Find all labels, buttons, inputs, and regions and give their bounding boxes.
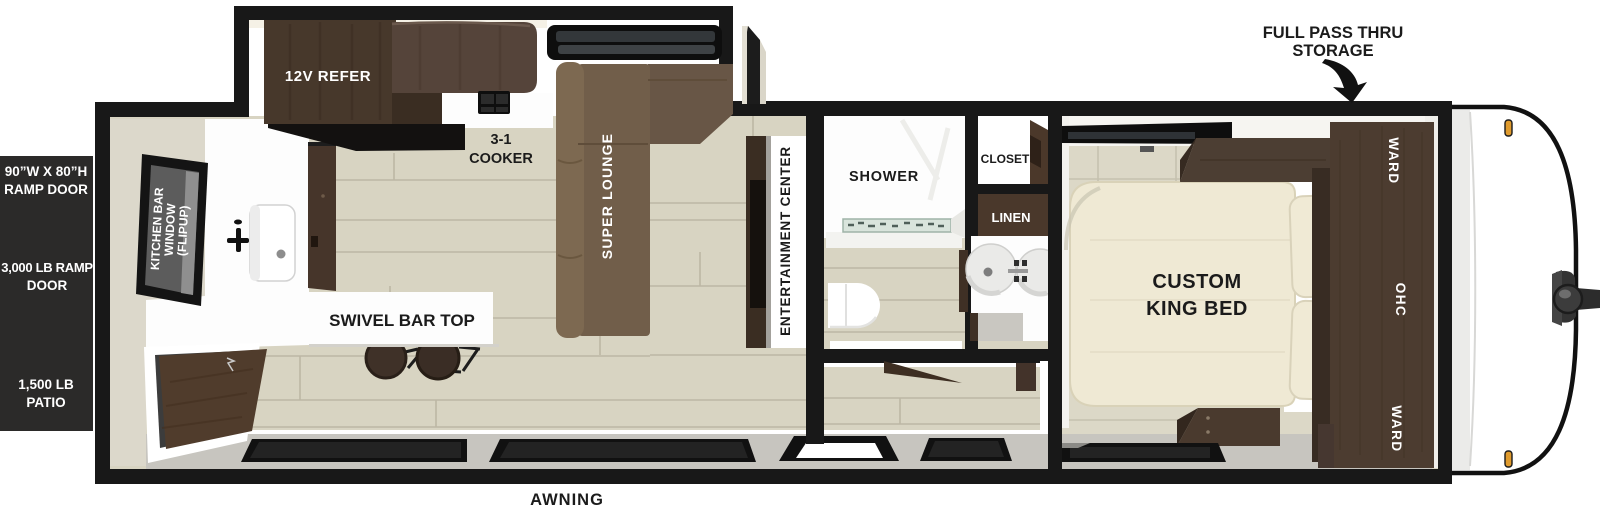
svg-text:ENTERTAINMENT CENTER: ENTERTAINMENT CENTER bbox=[778, 146, 793, 336]
svg-text:3,000 LB RAMP: 3,000 LB RAMP bbox=[1, 260, 93, 275]
svg-text:KING BED: KING BED bbox=[1146, 298, 1248, 320]
svg-text:CUSTOM: CUSTOM bbox=[1152, 271, 1241, 293]
svg-text:AWNING: AWNING bbox=[530, 491, 604, 506]
svg-text:3-1: 3-1 bbox=[491, 132, 512, 148]
svg-text:(FLIPUP): (FLIPUP) bbox=[175, 205, 192, 256]
svg-text:SHOWER: SHOWER bbox=[849, 169, 919, 185]
svg-text:FULL PASS THRU: FULL PASS THRU bbox=[1263, 24, 1404, 42]
svg-text:COOKER: COOKER bbox=[469, 151, 533, 167]
svg-text:90”W X 80”H: 90”W X 80”H bbox=[5, 164, 88, 179]
svg-text:SUPER LOUNGE: SUPER LOUNGE bbox=[599, 133, 615, 259]
svg-text:12V REFER: 12V REFER bbox=[285, 68, 371, 85]
svg-text:CLOSET: CLOSET bbox=[981, 152, 1030, 166]
svg-text:PATIO: PATIO bbox=[26, 395, 65, 410]
svg-text:SWIVEL BAR TOP: SWIVEL BAR TOP bbox=[329, 311, 475, 330]
svg-text:RAMP DOOR: RAMP DOOR bbox=[4, 182, 88, 197]
svg-text:WARD: WARD bbox=[1386, 137, 1401, 184]
svg-text:WARD: WARD bbox=[1389, 405, 1404, 452]
svg-text:1,500 LB: 1,500 LB bbox=[18, 377, 74, 392]
svg-text:OHC: OHC bbox=[1393, 283, 1408, 318]
svg-text:STORAGE: STORAGE bbox=[1292, 42, 1373, 60]
svg-text:LINEN: LINEN bbox=[992, 210, 1031, 225]
svg-text:DOOR: DOOR bbox=[27, 278, 68, 293]
